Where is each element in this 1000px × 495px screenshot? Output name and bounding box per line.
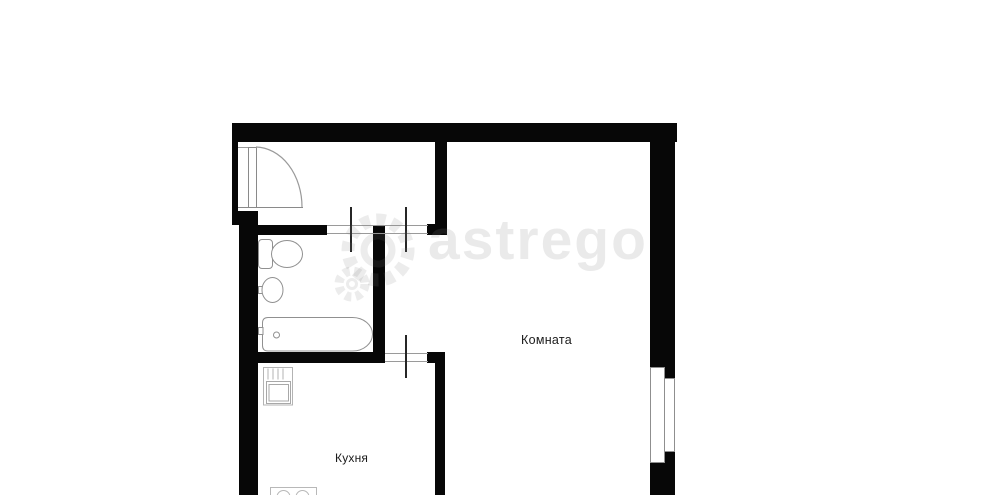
wash-basin	[262, 278, 283, 303]
room-label: Комната	[521, 333, 572, 347]
toilet-bowl	[272, 241, 303, 268]
kitchen-sink-inner	[269, 385, 289, 402]
stove-burner-right	[296, 491, 309, 495]
fixtures-layer	[0, 0, 1000, 495]
window-sill	[650, 367, 665, 463]
toilet-tank	[259, 240, 273, 269]
window-pane	[664, 378, 675, 452]
floor-plan: Комната Кухня astrego	[0, 0, 1000, 495]
bathtub-tap	[259, 328, 264, 335]
kitchen-label: Кухня	[335, 451, 368, 465]
kitchen-drainer-hatch	[268, 369, 283, 380]
entrance-door-arc	[256, 147, 302, 207]
stove-burner-left	[277, 491, 290, 495]
